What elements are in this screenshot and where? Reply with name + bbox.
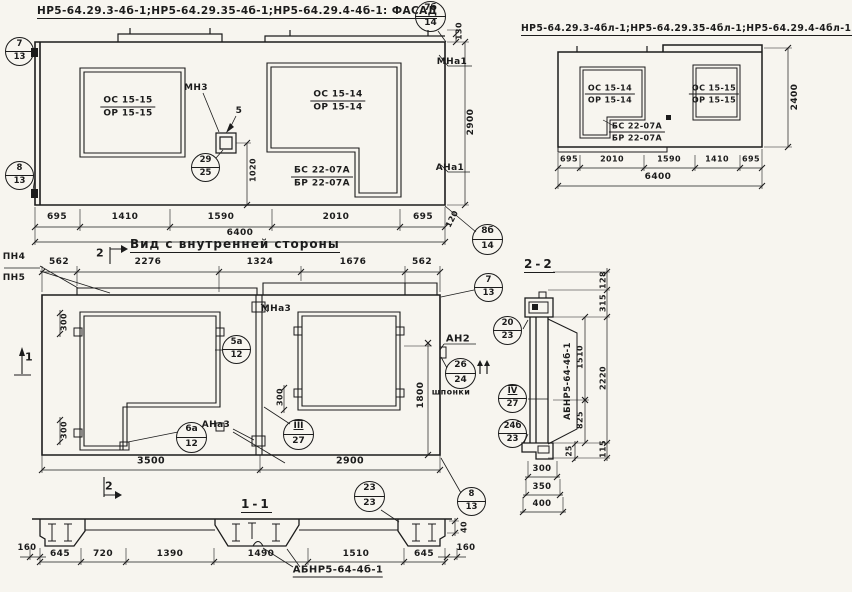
dim-1676: 1676 (340, 257, 367, 267)
dim-300: 300 (60, 313, 69, 331)
dim-720: 720 (93, 549, 113, 559)
dim-1490: 1490 (248, 549, 275, 559)
balloon-top-text: 8б (481, 226, 494, 236)
balloon-top-text: 8 (17, 163, 23, 173)
balloon-top-text: 8 (469, 489, 475, 499)
anchor-label-pn5: ПН5 (3, 273, 26, 283)
dim-400: 400 (533, 499, 552, 509)
balloon-bottom-text: 12 (223, 350, 250, 362)
anchor-label-mna3: МНа3 (261, 304, 291, 314)
dim-3500: 3500 (137, 456, 165, 467)
element-mark-top: ОС 15-15 (689, 84, 739, 95)
dim-25: 25 (565, 445, 574, 456)
element-mark-top: ОС 15-14 (310, 90, 365, 102)
callout-balloon: 2323 (354, 481, 385, 512)
dim-1590: 1590 (208, 212, 235, 222)
dim-695: 695 (413, 212, 433, 222)
balloon-bottom-text: 24 (446, 374, 475, 387)
drawing-canvas: НР5-64.29.3-4б-1;НР5-64.29.35-4б-1;НР5-6… (0, 0, 852, 592)
balloon-bottom-text: 13 (6, 176, 33, 188)
dim-1800: 1800 (416, 382, 426, 409)
callout-balloon: 813 (5, 161, 34, 190)
dim-645: 645 (414, 549, 434, 559)
callout-balloon: 6а12 (176, 422, 207, 453)
element-mark-bottom: ОР 15-14 (310, 102, 365, 113)
dim-1410: 1410 (112, 212, 139, 222)
dim-128: 128 (599, 271, 608, 289)
callout-balloon: 2925 (191, 153, 220, 182)
element-mark: БС 22-07АБР 22-07А (291, 166, 353, 189)
balloon-bottom-text: 13 (475, 288, 502, 300)
callout-balloon: 7б14 (415, 1, 446, 32)
dim-115: 115 (599, 440, 608, 458)
section-marker-2: 2 (96, 247, 104, 260)
element-mark-bottom: БР 22-07А (609, 133, 665, 143)
dim-height-2900: 2900 (466, 109, 476, 136)
dim-1324: 1324 (247, 257, 274, 267)
balloon-bottom-text: 14 (473, 240, 502, 253)
dim-1390: 1390 (157, 549, 184, 559)
label-shponki: шпонки (432, 388, 470, 397)
dim-300: 300 (533, 464, 552, 474)
element-mark: ОС 15-15ОР 15-15 (689, 84, 739, 105)
balloon-top-text: 26 (454, 360, 467, 370)
balloon-top-text: 6а (185, 424, 197, 434)
callout-balloon: III27 (283, 419, 314, 450)
callout-balloon: 713 (474, 273, 503, 302)
dim-1510: 1510 (343, 549, 370, 559)
anchor-label-an2: АН2 (446, 334, 470, 345)
balloon-bottom-text: 14 (416, 17, 445, 30)
balloon-top-text: 20 (502, 318, 514, 328)
element-mark-bottom: ОР 15-14 (585, 95, 635, 105)
balloon-top-text: III (293, 421, 303, 431)
section-marker-1: 1 (25, 351, 33, 364)
dim-695: 695 (742, 155, 760, 164)
balloon-top-text: 23 (363, 483, 376, 493)
balloon-top-text: 29 (200, 155, 212, 165)
balloon-top-text: 7 (17, 39, 23, 49)
dim-height-2400: 2400 (790, 84, 800, 111)
callout-balloon: 713 (5, 37, 34, 66)
anchor-label-pn4: ПН4 (3, 252, 26, 262)
label-abnr-beam: АБНР5-64-4б-1 (563, 342, 573, 420)
element-mark: БС 22-07АБР 22-07А (609, 122, 665, 143)
dim-825: 825 (576, 411, 585, 429)
dim-2220: 2220 (599, 366, 608, 390)
element-mark-top: БС 22-07А (609, 122, 665, 133)
element-mark-top: ОС 15-15 (100, 96, 155, 108)
balloon-bottom-text: 13 (458, 502, 485, 514)
balloon-top-text: 7 (486, 275, 492, 285)
dim-1410: 1410 (705, 155, 729, 164)
dim-695: 695 (560, 155, 578, 164)
dim-total-6400: 6400 (227, 228, 254, 238)
dim-2276: 2276 (135, 257, 162, 267)
dim-1590: 1590 (657, 155, 681, 164)
callout-balloon: IV27 (498, 384, 527, 413)
balloon-bottom-text: 27 (499, 399, 526, 411)
anchor-label-ana1: АНа1 (436, 163, 464, 173)
dim-300: 300 (276, 388, 285, 406)
dim-total-6400: 6400 (645, 172, 672, 182)
callout-balloon: 2023 (493, 316, 522, 345)
balloon-bottom-text: 12 (177, 438, 206, 451)
dim-160: 160 (18, 543, 37, 553)
element-mark-bottom: БР 22-07А (291, 178, 353, 189)
balloon-bottom-text: 23 (494, 331, 521, 343)
element-mark-top: ОС 15-14 (585, 84, 635, 95)
element-mark: ОС 15-14ОР 15-14 (310, 90, 365, 113)
element-mark-top: БС 22-07А (291, 166, 353, 178)
anchor-label-mna1: МНа1 (437, 57, 467, 67)
balloon-bottom-text: 25 (192, 168, 219, 180)
dim-315: 315 (599, 294, 608, 312)
annotation-overlay: 130МНа12900АНа1120МН35102069514101590201… (0, 0, 852, 592)
dim-350: 350 (533, 482, 552, 492)
callout-balloon: 24б23 (498, 419, 527, 448)
dim-1510: 1510 (576, 345, 585, 369)
dim-645: 645 (50, 549, 70, 559)
callout-balloon: 813 (457, 487, 486, 516)
balloon-bottom-text: 23 (499, 434, 526, 446)
balloon-bottom-text: 27 (284, 435, 313, 448)
element-mark: ОС 15-14ОР 15-14 (585, 84, 635, 105)
element-mark-bottom: ОР 15-15 (689, 95, 739, 105)
dim-300: 300 (60, 421, 69, 439)
balloon-top-text: 7б (424, 3, 437, 13)
balloon-bottom-text: 23 (355, 497, 384, 510)
callout-balloon: 8б14 (472, 224, 503, 255)
balloon-top-text: IV (508, 386, 518, 396)
dim-5: 5 (236, 106, 243, 116)
dim-1020: 1020 (249, 158, 258, 182)
anchor-label-ana3: АНа3 (202, 420, 230, 430)
anchor-label-mn3: МН3 (184, 83, 208, 93)
callout-balloon: 5а12 (222, 335, 251, 364)
element-mark-bottom: ОР 15-15 (100, 108, 155, 119)
dim-120: 120 (444, 209, 460, 229)
dim-40: 40 (460, 521, 469, 533)
blueprint-page: { "colors": {"ink": "#1c1c1c", "paper": … (0, 0, 852, 592)
dim-562: 562 (49, 257, 69, 267)
balloon-top-text: 5а (231, 337, 243, 347)
label-abnr-beam: АБНР5-64-4б-1 (293, 565, 383, 578)
dim-parapet-130: 130 (455, 22, 464, 40)
balloon-bottom-text: 13 (6, 52, 33, 64)
dim-160: 160 (457, 543, 476, 553)
callout-balloon: 2624 (445, 358, 476, 389)
balloon-top-text: 24б (504, 421, 522, 431)
dim-2010: 2010 (600, 155, 624, 164)
dim-2900: 2900 (336, 456, 364, 467)
section-marker-2: 2 (105, 480, 113, 493)
dim-2010: 2010 (323, 212, 350, 222)
dim-695: 695 (47, 212, 67, 222)
dim-562: 562 (412, 257, 432, 267)
element-mark: ОС 15-15ОР 15-15 (100, 96, 155, 119)
